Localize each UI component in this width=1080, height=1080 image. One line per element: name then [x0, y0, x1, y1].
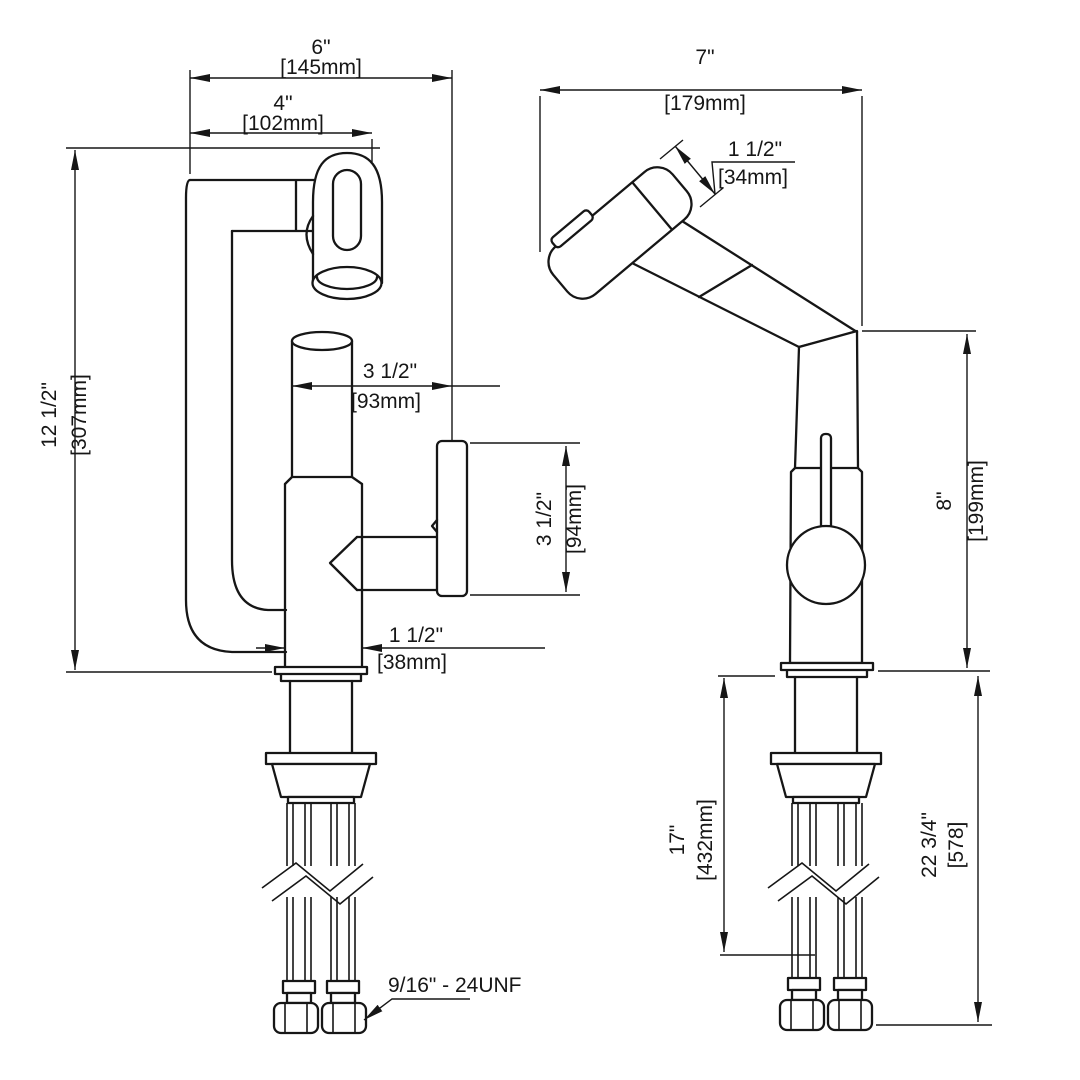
hose-ferrule-front-left: [283, 981, 315, 993]
side-view: 7" [179mm] 1 1/2" [34mm] 8" [199mm] 17" …: [535, 46, 992, 1030]
hose-ferrule-front-right: [327, 981, 359, 993]
dim-label: 1 1/2": [728, 138, 782, 161]
hose-nut-front-right: [322, 1003, 366, 1033]
dim-label-mm: [179mm]: [664, 92, 746, 115]
faucet-body-front: [285, 332, 362, 667]
spout-arm-front: [186, 180, 314, 652]
thread-label: 9/16" - 24UNF: [388, 974, 522, 997]
dim-label-mm: [94mm]: [563, 484, 586, 554]
faucet-body-side: [787, 331, 865, 663]
dim-label: 12 1/2": [38, 382, 61, 448]
dim-side-spout-height: 8" [199mm]: [862, 331, 990, 671]
hose-ferrule-side-right: [834, 978, 866, 990]
handle-front: [330, 441, 467, 596]
handle-stem: [357, 537, 437, 590]
dim-label: 3 1/2": [363, 360, 417, 383]
dim-side-total-length: 22 3/4" [578]: [876, 676, 992, 1025]
riser-top-cap: [292, 332, 352, 350]
dim-label-mm: [145mm]: [280, 56, 362, 79]
dim-front-spout-width: 4" [102mm]: [190, 92, 372, 162]
supply-hoses-front: [287, 803, 355, 981]
dim-front-handle-height: 3 1/2" [94mm]: [470, 443, 586, 595]
handle-cone: [330, 537, 357, 590]
handle-ball-side: [787, 526, 865, 604]
dim-label: 22 3/4": [918, 812, 941, 878]
break-symbol-front: [262, 863, 373, 904]
dim-label: 8": [933, 491, 956, 510]
faucet-dimension-drawing: 6" [145mm] 4" [102mm] 12 1/2" [307mm] 3 …: [0, 0, 1080, 1080]
hose-nut-front-left: [274, 1003, 318, 1033]
hose-nut-side-right: [828, 1000, 872, 1030]
dim-label-mm: [578]: [945, 822, 968, 869]
mounting-shank-side: [795, 677, 857, 753]
dim-label-mm: [307mm]: [68, 374, 91, 456]
hose-nut-side-left: [780, 1000, 824, 1030]
base-flange-side: [781, 663, 873, 677]
handle-blade: [437, 441, 467, 596]
shank-neck-side: [793, 797, 859, 803]
base-and-supply-front: [262, 667, 376, 1033]
dim-label: 3 1/2": [533, 492, 556, 546]
mounting-nut-front: [272, 764, 370, 797]
base-flange-front: [275, 667, 367, 681]
sprayer-head-front: [307, 153, 383, 299]
mounting-washer-side: [771, 753, 881, 764]
hose-ferrule-side-left: [788, 978, 820, 990]
dim-label-mm: [34mm]: [718, 166, 788, 189]
dim-front-spout-to-handle: 3 1/2" [93mm]: [292, 360, 500, 413]
base-and-supply-side: [768, 663, 881, 1030]
thread-callout: 9/16" - 24UNF: [364, 974, 522, 1020]
dim-label: 1 1/2": [389, 624, 443, 647]
dim-label-mm: [432mm]: [694, 799, 717, 881]
spout-tube-side: [632, 221, 857, 347]
dim-label-mm: [102mm]: [242, 112, 324, 135]
dim-label: 7": [695, 46, 714, 69]
technical-drawing-page: 6" [145mm] 4" [102mm] 12 1/2" [307mm] 3 …: [0, 0, 1080, 1080]
dim-label-mm: [93mm]: [351, 390, 421, 413]
front-view: 6" [145mm] 4" [102mm] 12 1/2" [307mm] 3 …: [38, 36, 586, 1033]
mounting-nut-side: [777, 764, 875, 797]
supply-hoses-side: [792, 803, 862, 978]
handle-rod-side: [821, 434, 831, 530]
dim-label-mm: [38mm]: [377, 651, 447, 674]
dim-label-mm: [199mm]: [965, 460, 988, 542]
dim-label: 17": [666, 825, 689, 856]
mounting-shank-front: [290, 681, 352, 753]
mounting-washer-front: [266, 753, 376, 764]
shank-neck-front: [288, 797, 354, 803]
